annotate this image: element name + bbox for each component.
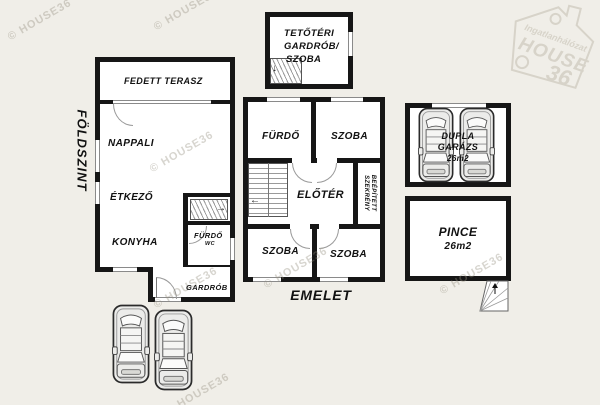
label-furdo-gf: FÜRDŐ bbox=[194, 231, 223, 240]
cellar-stairs-icon bbox=[479, 280, 509, 312]
window bbox=[95, 140, 100, 172]
car-icon bbox=[154, 306, 193, 394]
window bbox=[331, 97, 363, 102]
wall-segment bbox=[311, 102, 316, 163]
stair-divider bbox=[268, 163, 269, 217]
label-furdo-up: FÜRDŐ bbox=[262, 131, 300, 142]
label-etkezo: ÉTKEZŐ bbox=[110, 192, 153, 203]
label-eloter: ELŐTÉR bbox=[297, 189, 344, 201]
label-szoba-left: SZOBA bbox=[262, 246, 299, 257]
window bbox=[320, 277, 348, 282]
wall-segment bbox=[183, 193, 188, 270]
label-closet-line1: BEÉPÍTETT bbox=[370, 175, 376, 212]
label-beepitett-szekreny: BEÉPÍTETT SZEKRÉNY bbox=[362, 164, 376, 222]
label-tetoteri-2: GARDRÓB/ bbox=[284, 41, 339, 52]
label-konyha: KONYHA bbox=[112, 237, 158, 248]
arrow-down-icon: ↓ bbox=[272, 64, 277, 74]
label-garazs-area: 26m2 bbox=[447, 154, 469, 163]
label-tetoteri-3: SZOBA bbox=[286, 54, 321, 65]
wall-segment bbox=[183, 221, 235, 225]
label-wc: WC bbox=[205, 241, 215, 247]
window bbox=[230, 238, 235, 260]
label-closet-line2: SZEKRÉNY bbox=[363, 175, 369, 211]
wall-segment bbox=[339, 224, 380, 229]
window bbox=[113, 267, 137, 272]
label-pince-name: PINCE bbox=[439, 225, 478, 239]
floor-plan-image: → FEDETT TERASZ NAPPALI ÉTKEZŐ KONYHA FÜ… bbox=[0, 0, 600, 405]
label-pince: PINCE 26m2 bbox=[425, 226, 491, 253]
watermark-text: © HOUSE36 bbox=[152, 0, 220, 33]
glass-wall bbox=[137, 100, 211, 104]
window bbox=[95, 182, 100, 204]
wall-segment bbox=[95, 100, 113, 104]
label-garazs: DUPLA GARÁZS 26m2 bbox=[420, 131, 496, 164]
label-tetoteri-1: TETŐTÉRI bbox=[284, 28, 334, 39]
house36-logo-watermark: Ingatlanhálózat HOUSE 36 bbox=[488, 0, 600, 99]
wall-segment bbox=[211, 100, 235, 104]
label-szoba-top: SZOBA bbox=[331, 131, 368, 142]
arrow-left-icon: ← bbox=[250, 196, 260, 206]
title-foldszint: FÖLDSZINT bbox=[75, 99, 90, 203]
label-pince-area: 26m2 bbox=[444, 241, 471, 252]
label-szoba-right: SZOBA bbox=[330, 249, 367, 260]
label-garazs-line2: GARÁZS bbox=[438, 142, 478, 152]
wall-segment bbox=[337, 158, 380, 163]
label-nappali: NAPPALI bbox=[108, 138, 154, 149]
wall-segment bbox=[183, 193, 235, 197]
title-emelet: EMELET bbox=[285, 287, 357, 303]
watermark-text: © HOUSE36 bbox=[6, 0, 74, 43]
car-icon bbox=[112, 303, 150, 385]
label-fedett-terasz: FEDETT TERASZ bbox=[124, 76, 203, 86]
wall-segment bbox=[248, 224, 290, 229]
window bbox=[267, 97, 300, 102]
wall-segment bbox=[353, 163, 358, 224]
label-garazs-line1: DUPLA bbox=[442, 131, 475, 141]
label-gardrob: GARDRÓB bbox=[186, 283, 228, 292]
window bbox=[348, 32, 353, 56]
arrow-right-icon: → bbox=[216, 204, 226, 214]
